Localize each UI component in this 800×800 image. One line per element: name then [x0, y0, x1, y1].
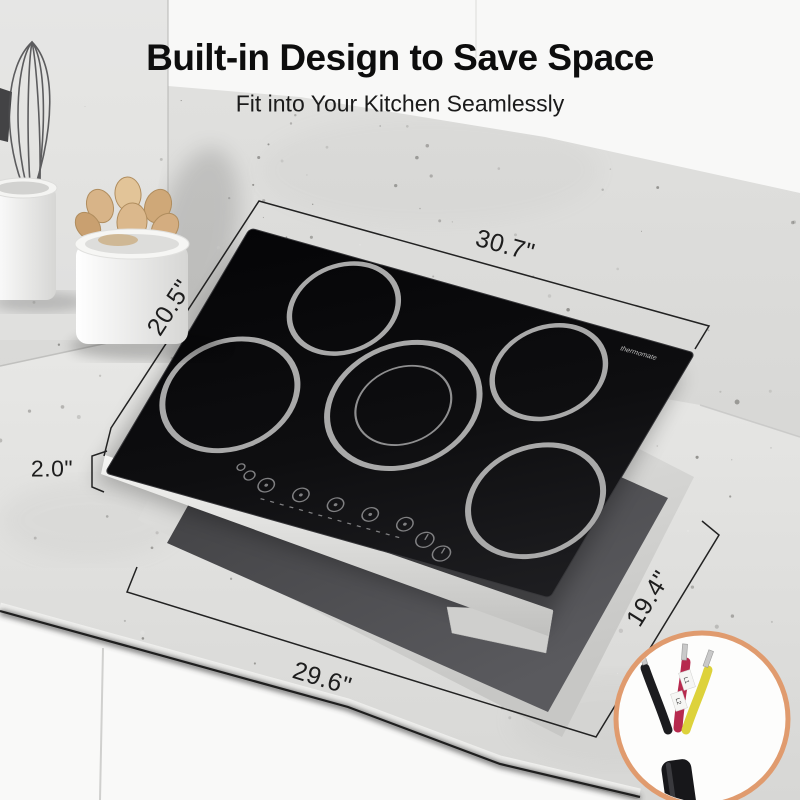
whisk-holder — [0, 186, 56, 300]
page-title: Built-in Design to Save Space — [146, 37, 654, 79]
power-cable-inset: L1 L2 — [616, 633, 788, 800]
page-subtitle: Fit into Your Kitchen Seamlessly — [236, 91, 565, 118]
product-image: thermomate — [0, 0, 800, 800]
spoon-handles — [98, 234, 138, 246]
inset-circle — [616, 633, 788, 800]
scene-illustration: thermomate — [0, 0, 800, 800]
dimension-label-thickness: 2.0" — [31, 456, 73, 483]
